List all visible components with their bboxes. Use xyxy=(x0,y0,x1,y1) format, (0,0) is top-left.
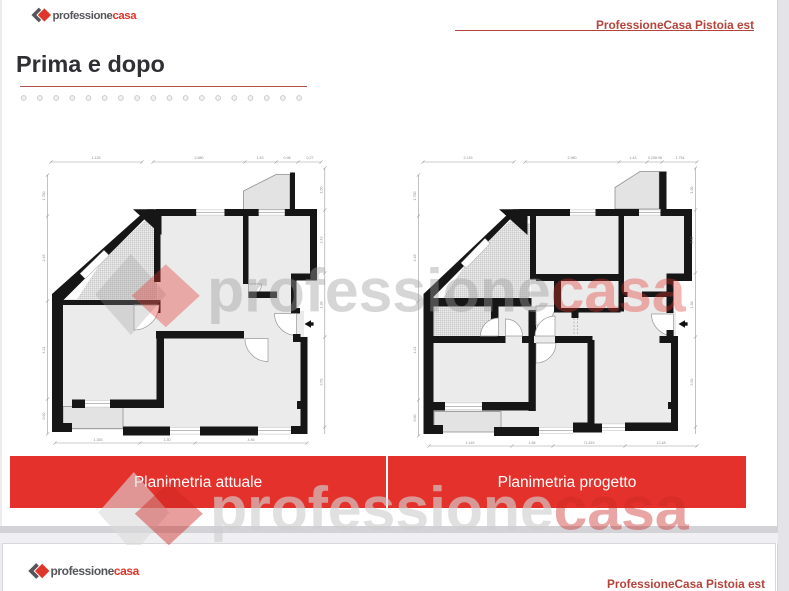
svg-text:2.145: 2.145 xyxy=(464,156,473,160)
svg-text:4.46: 4.46 xyxy=(248,438,255,442)
svg-text:1.43: 1.43 xyxy=(257,156,264,160)
svg-text:1.38: 1.38 xyxy=(320,302,324,309)
svg-text:1.780: 1.780 xyxy=(42,192,46,201)
svg-text:3.53: 3.53 xyxy=(690,379,694,386)
svg-text:1.135: 1.135 xyxy=(92,156,101,160)
svg-text:2.48: 2.48 xyxy=(413,255,417,262)
svg-text:1.754: 1.754 xyxy=(676,156,685,160)
svg-text:2.980: 2.980 xyxy=(568,156,577,160)
svg-text:0.60: 0.60 xyxy=(42,413,46,420)
svg-text:4.21: 4.21 xyxy=(413,347,417,354)
svg-text:0.98: 0.98 xyxy=(284,156,291,160)
svg-text:2.42: 2.42 xyxy=(690,237,694,244)
svg-text:0.60: 0.60 xyxy=(413,415,417,422)
svg-text:3.53: 3.53 xyxy=(320,379,324,386)
svg-text:0.27: 0.27 xyxy=(307,156,314,160)
svg-text:71.815: 71.815 xyxy=(584,441,595,445)
svg-text:1.30: 1.30 xyxy=(164,438,171,442)
svg-text:1.145: 1.145 xyxy=(466,441,475,445)
svg-text:1.780: 1.780 xyxy=(413,192,417,201)
svg-text:4.21: 4.21 xyxy=(42,347,46,354)
svg-text:1.355: 1.355 xyxy=(94,438,103,442)
svg-text:1.43: 1.43 xyxy=(630,156,637,160)
svg-text:1.50: 1.50 xyxy=(320,187,324,194)
svg-text:0.208.98: 0.208.98 xyxy=(648,156,662,160)
svg-text:2.48: 2.48 xyxy=(42,255,46,262)
svg-text:2.42: 2.42 xyxy=(320,237,324,244)
svg-text:2.980: 2.980 xyxy=(195,156,204,160)
svg-text:1.38: 1.38 xyxy=(690,302,694,309)
svg-text:professionecasa: professionecasa xyxy=(51,564,140,578)
svg-text:1.66: 1.66 xyxy=(529,441,536,445)
svg-text:1.50: 1.50 xyxy=(690,187,694,194)
svg-text:12.48: 12.48 xyxy=(657,441,666,445)
